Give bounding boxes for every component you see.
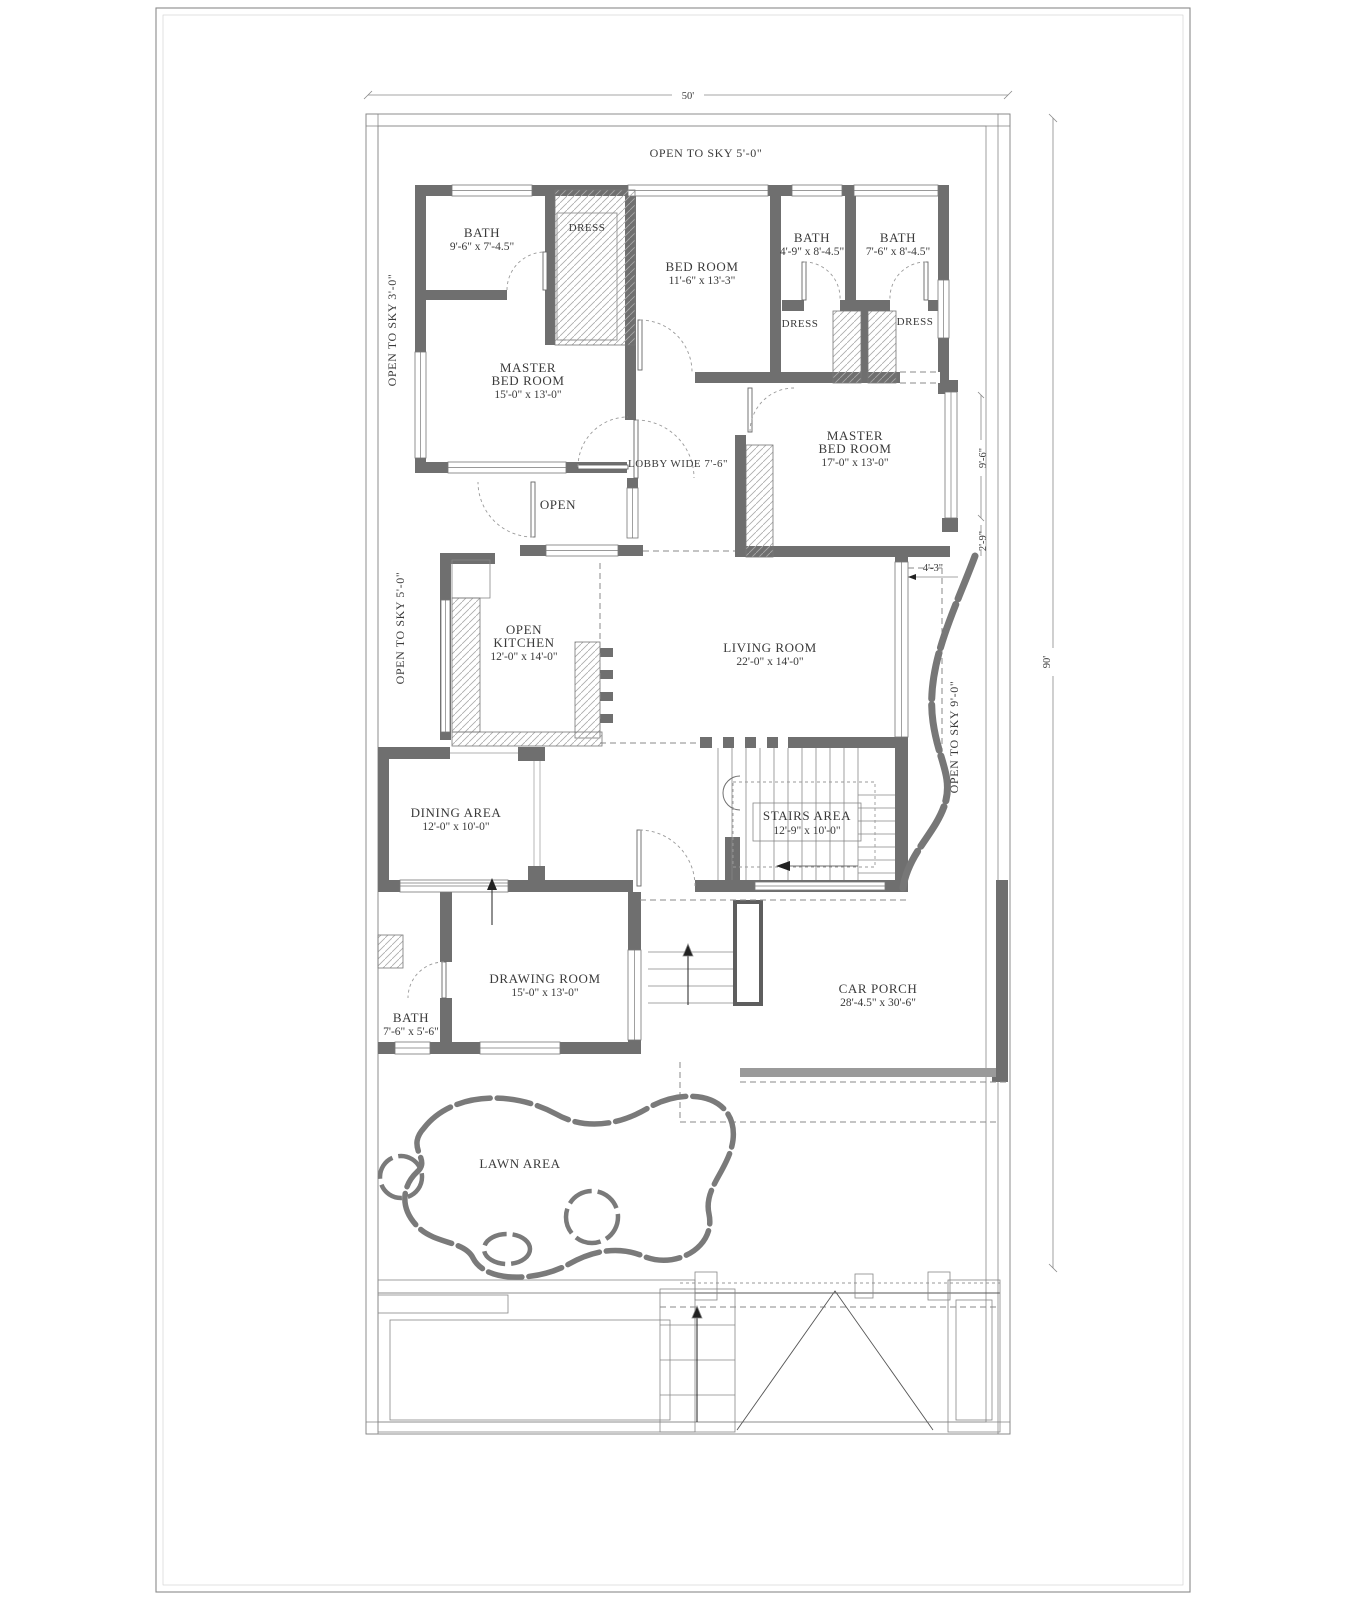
- page-border: [156, 8, 1190, 1592]
- front-yard-strip: [378, 1272, 1000, 1432]
- planter-bed-left: [390, 1320, 670, 1420]
- room-dims: 17'-0" x 13'-0": [821, 457, 888, 469]
- room-dims: 22'-0" x 14'-0": [736, 656, 803, 668]
- room-bath-bottom: BATH 7'-6" x 5'-6": [383, 1010, 439, 1038]
- gate-post: [695, 1272, 717, 1300]
- room-dims: 11'-6" x 13'-3": [669, 275, 736, 287]
- lawn: [380, 1096, 733, 1277]
- room-open-kitchen: OPEN KITCHEN 12'-0" x 14'-0": [490, 622, 557, 663]
- room-bath-right: BATH 7'-6" x 8'-4.5": [866, 230, 930, 258]
- planter-bed-right: [956, 1300, 992, 1420]
- room-dining-area: DINING AREA 12'-0" x 10'-0": [411, 805, 502, 833]
- room-master-bed-right: MASTER BED ROOM 17'-0" x 13'-0": [818, 428, 891, 469]
- room-dims: 7'-6" x 8'-4.5": [866, 246, 930, 258]
- room-drawing-room: DRAWING ROOM 15'-0" x 13'-0": [489, 971, 600, 999]
- room-label: BED ROOM: [491, 373, 564, 388]
- room-living-room: LIVING ROOM 22'-0" x 14'-0": [723, 640, 817, 668]
- room-label: BATH: [393, 1010, 429, 1025]
- room-label: DRAWING ROOM: [489, 971, 600, 986]
- dim-2-9: 2'-9": [978, 531, 989, 551]
- room-label: LIVING ROOM: [723, 640, 817, 655]
- room-dims: 15'-0" x 13'-0": [511, 987, 578, 999]
- room-dims: 15'-0" x 13'-0": [494, 389, 561, 401]
- room-label: DINING AREA: [411, 805, 502, 820]
- dimension-line-right: 90': [1042, 114, 1057, 1272]
- boundary-wall: [366, 114, 1010, 1434]
- room-stairs-area: STAIRS AREA 12'-9" x 10'-0": [763, 808, 851, 837]
- room-dims: 28'-4.5" x 30'-6": [840, 997, 916, 1009]
- dimension-line-top: 50': [364, 91, 1012, 102]
- floor-plan-canvas: 50' 90' OPEN TO SKY 5'-0" OPEN TO SKY 3'…: [0, 0, 1348, 1600]
- room-dims: 12'-0" x 14'-0": [490, 651, 557, 663]
- room-label: BATH: [794, 230, 830, 245]
- room-dims: 4'-9" x 8'-4.5": [780, 246, 844, 258]
- room-dims: 12'-0" x 10'-0": [422, 821, 489, 833]
- room-open: OPEN: [540, 497, 576, 512]
- room-dims: 7'-6" x 5'-6": [383, 1026, 439, 1038]
- open-to-sky-left-upper-label: OPEN TO SKY 3'-0": [385, 274, 399, 387]
- dim-4-3: 4'-3": [923, 563, 943, 574]
- open-to-sky-left-lower-label: OPEN TO SKY 5'-0": [393, 572, 407, 685]
- room-dress-mid: DRESS: [782, 318, 819, 330]
- gate-post: [928, 1272, 950, 1300]
- overall-width-dim: 50': [682, 91, 695, 102]
- room-master-bed-left: MASTER BED ROOM 15'-0" x 13'-0": [491, 360, 564, 401]
- curved-boundary-wall: [903, 556, 975, 888]
- room-lawn-area: LAWN AREA: [479, 1156, 560, 1171]
- room-dress-right: DRESS: [897, 316, 934, 328]
- room-label: STAIRS AREA: [763, 808, 851, 823]
- room-dress-top-left: DRESS: [569, 222, 606, 234]
- room-label: CAR PORCH: [839, 981, 918, 996]
- room-bath-mid: BATH 4'-9" x 8'-4.5": [780, 230, 844, 258]
- open-to-sky-top-label: OPEN TO SKY 5'-0": [650, 146, 763, 160]
- room-lobby: LOBBY WIDE 7'-6": [628, 458, 728, 470]
- main-gate: [737, 1291, 933, 1430]
- room-label: BED ROOM: [818, 441, 891, 456]
- room-bed-room: BED ROOM 11'-6" x 13'-3": [665, 259, 738, 287]
- overall-height-dim: 90': [1042, 656, 1053, 669]
- gate-steps: [660, 1289, 735, 1432]
- room-label: BED ROOM: [665, 259, 738, 274]
- room-bath-top-left: BATH 9'-6" x 7'-4.5": [450, 225, 514, 253]
- room-label: KITCHEN: [493, 635, 554, 650]
- room-car-porch: CAR PORCH 28'-4.5" x 30'-6": [839, 981, 918, 1009]
- entrance-steps: [648, 944, 733, 1005]
- dim-9-6: 9'-6": [978, 448, 989, 468]
- room-label: BATH: [464, 225, 500, 240]
- room-dims: 9'-6" x 7'-4.5": [450, 241, 514, 253]
- room-label: BATH: [880, 230, 916, 245]
- page: { "plan": { "overall_width": "50'", "ove…: [0, 0, 1348, 1600]
- room-dims: 12'-9" x 10'-0": [773, 825, 840, 837]
- gate-post: [855, 1274, 873, 1298]
